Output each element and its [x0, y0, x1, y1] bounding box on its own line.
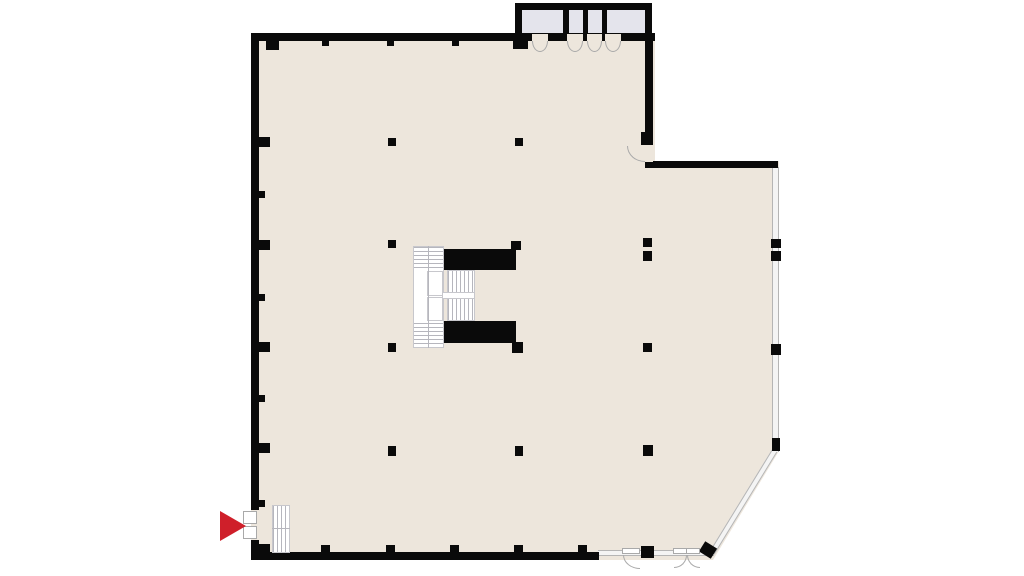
entrance-stair — [272, 505, 290, 553]
entrance-stair-landing — [272, 528, 290, 529]
floor-plan-canvas: Open office floor plan: central stair an… — [0, 0, 1024, 576]
entrance-layer — [0, 0, 1024, 576]
entrance-arrow-icon — [220, 511, 246, 541]
